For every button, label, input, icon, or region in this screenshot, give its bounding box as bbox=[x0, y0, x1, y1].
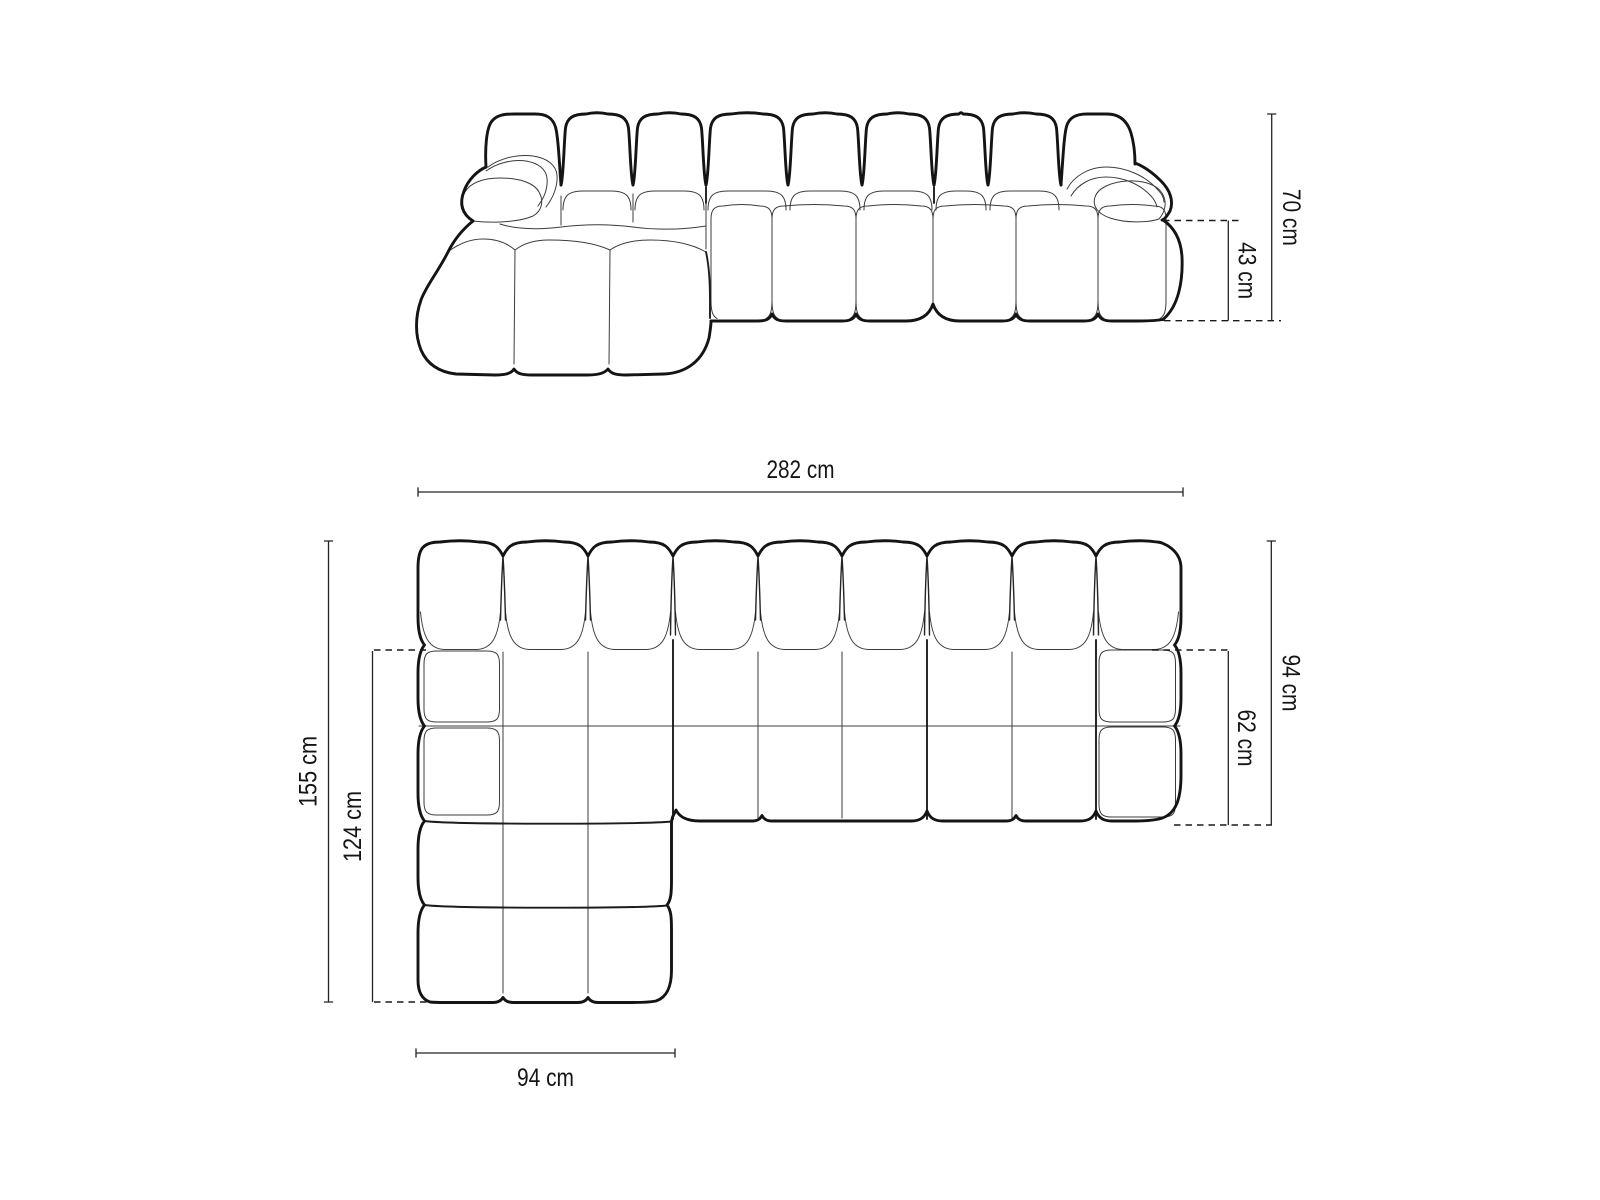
svg-text:70 cm: 70 cm bbox=[1277, 189, 1305, 246]
svg-text:124 cm: 124 cm bbox=[339, 791, 367, 862]
svg-text:94 cm: 94 cm bbox=[517, 1064, 574, 1092]
svg-text:94 cm: 94 cm bbox=[1277, 655, 1305, 712]
svg-text:282 cm: 282 cm bbox=[767, 456, 835, 484]
svg-text:62 cm: 62 cm bbox=[1232, 710, 1260, 767]
svg-text:155 cm: 155 cm bbox=[295, 736, 323, 807]
svg-text:43 cm: 43 cm bbox=[1233, 242, 1261, 299]
